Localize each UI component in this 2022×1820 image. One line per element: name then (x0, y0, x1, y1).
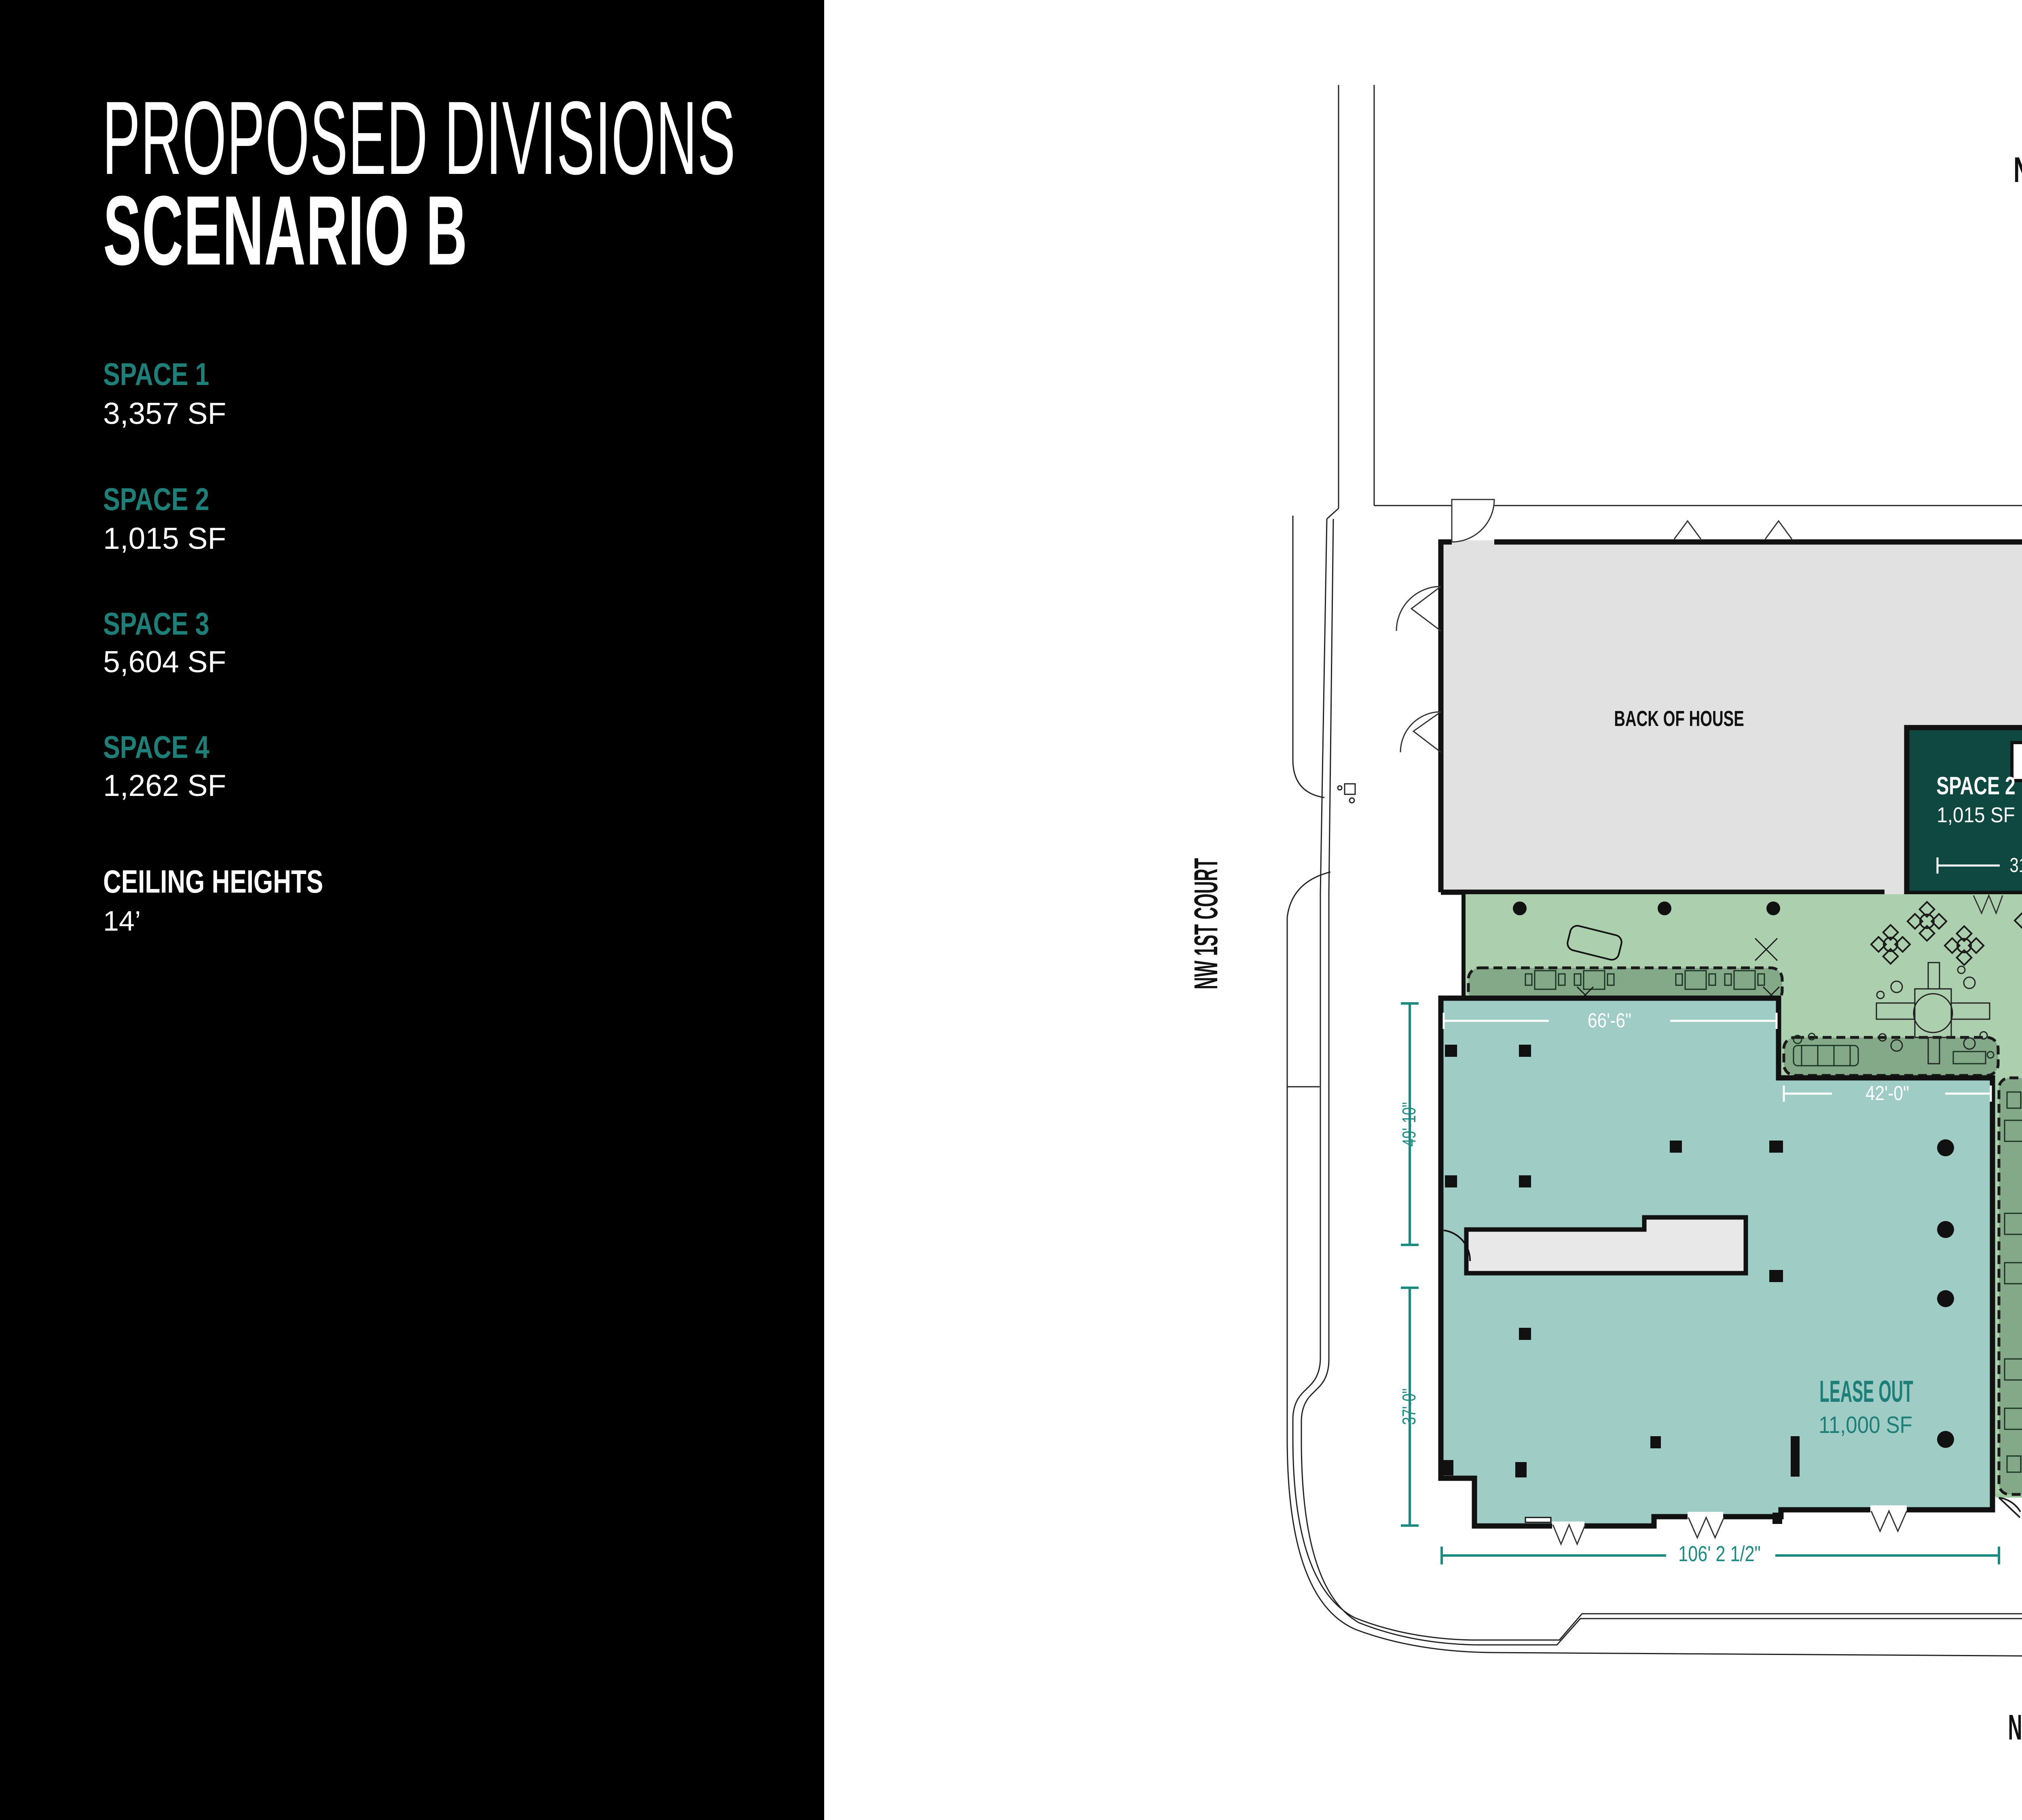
svg-text:SPACE 4: SPACE 4 (103, 729, 209, 764)
svg-text:66'-6": 66'-6" (1588, 1009, 1631, 1032)
svg-text:5,604 SF: 5,604 SF (103, 645, 226, 679)
svg-text:NW 22ND ST: NW 22ND ST (2008, 1708, 2022, 1748)
svg-text:SPACE 1: SPACE 1 (103, 356, 209, 392)
svg-text:BACK OF HOUSE: BACK OF HOUSE (1614, 707, 1744, 731)
svg-text:106' 2 1/2": 106' 2 1/2" (1678, 1542, 1761, 1566)
svg-text:CEILING HEIGHTS: CEILING HEIGHTS (103, 863, 323, 899)
svg-text:SCENARIO B: SCENARIO B (103, 176, 468, 286)
svg-text:SPACE 2: SPACE 2 (103, 481, 209, 516)
svg-text:1,262 SF: 1,262 SF (103, 768, 226, 802)
svg-text:14’: 14’ (103, 905, 141, 937)
svg-text:31'-11": 31'-11" (2009, 854, 2022, 876)
svg-text:11,000 SF: 11,000 SF (1819, 1412, 1912, 1438)
svg-text:SPACE 2: SPACE 2 (1936, 771, 2016, 800)
svg-text:NW 1ST COURT: NW 1ST COURT (1187, 858, 1225, 990)
svg-text:LEASE OUT: LEASE OUT (1819, 1374, 1913, 1409)
svg-text:1,015 SF: 1,015 SF (103, 521, 226, 555)
svg-text:37'-0": 37'-0" (1399, 1388, 1420, 1425)
svg-text:49'-10": 49'-10" (1399, 1102, 1420, 1147)
svg-text:NW 23RD ST: NW 23RD ST (2014, 150, 2022, 189)
svg-text:1,015 SF: 1,015 SF (1937, 803, 2015, 827)
svg-text:42'-0": 42'-0" (1865, 1082, 1909, 1105)
svg-text:3,357 SF: 3,357 SF (103, 396, 226, 430)
svg-text:SPACE 3: SPACE 3 (103, 606, 209, 641)
